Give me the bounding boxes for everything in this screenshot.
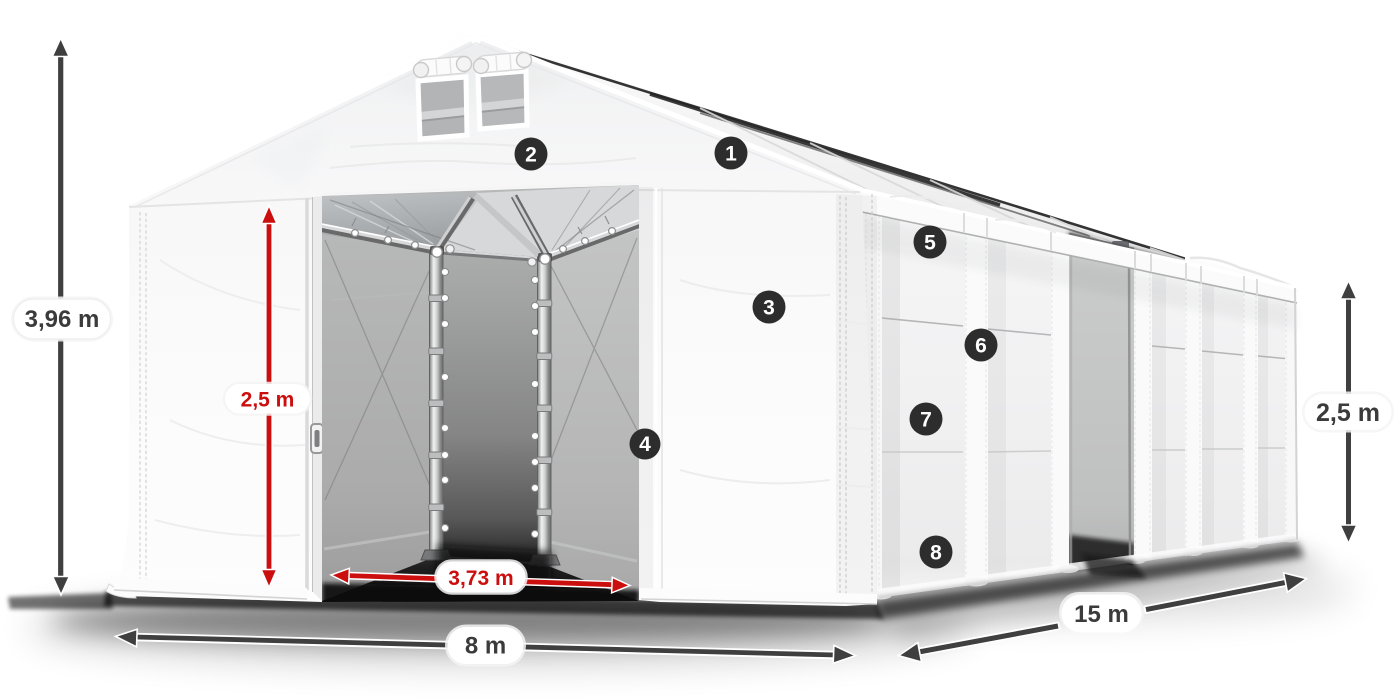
svg-text:2,5 m: 2,5 m (241, 389, 295, 412)
svg-text:1: 1 (725, 143, 737, 166)
svg-text:8 m: 8 m (465, 633, 506, 660)
svg-text:3,73 m: 3,73 m (448, 567, 513, 590)
svg-text:8: 8 (930, 542, 942, 565)
svg-text:6: 6 (975, 335, 987, 358)
svg-text:4: 4 (639, 433, 651, 456)
svg-text:2,5 m: 2,5 m (1316, 399, 1380, 427)
svg-text:5: 5 (924, 232, 936, 255)
svg-text:2: 2 (525, 144, 537, 167)
svg-text:3,96 m: 3,96 m (25, 306, 100, 333)
svg-text:15 m: 15 m (1074, 601, 1129, 628)
svg-text:7: 7 (920, 409, 932, 432)
svg-text:3: 3 (763, 297, 775, 320)
